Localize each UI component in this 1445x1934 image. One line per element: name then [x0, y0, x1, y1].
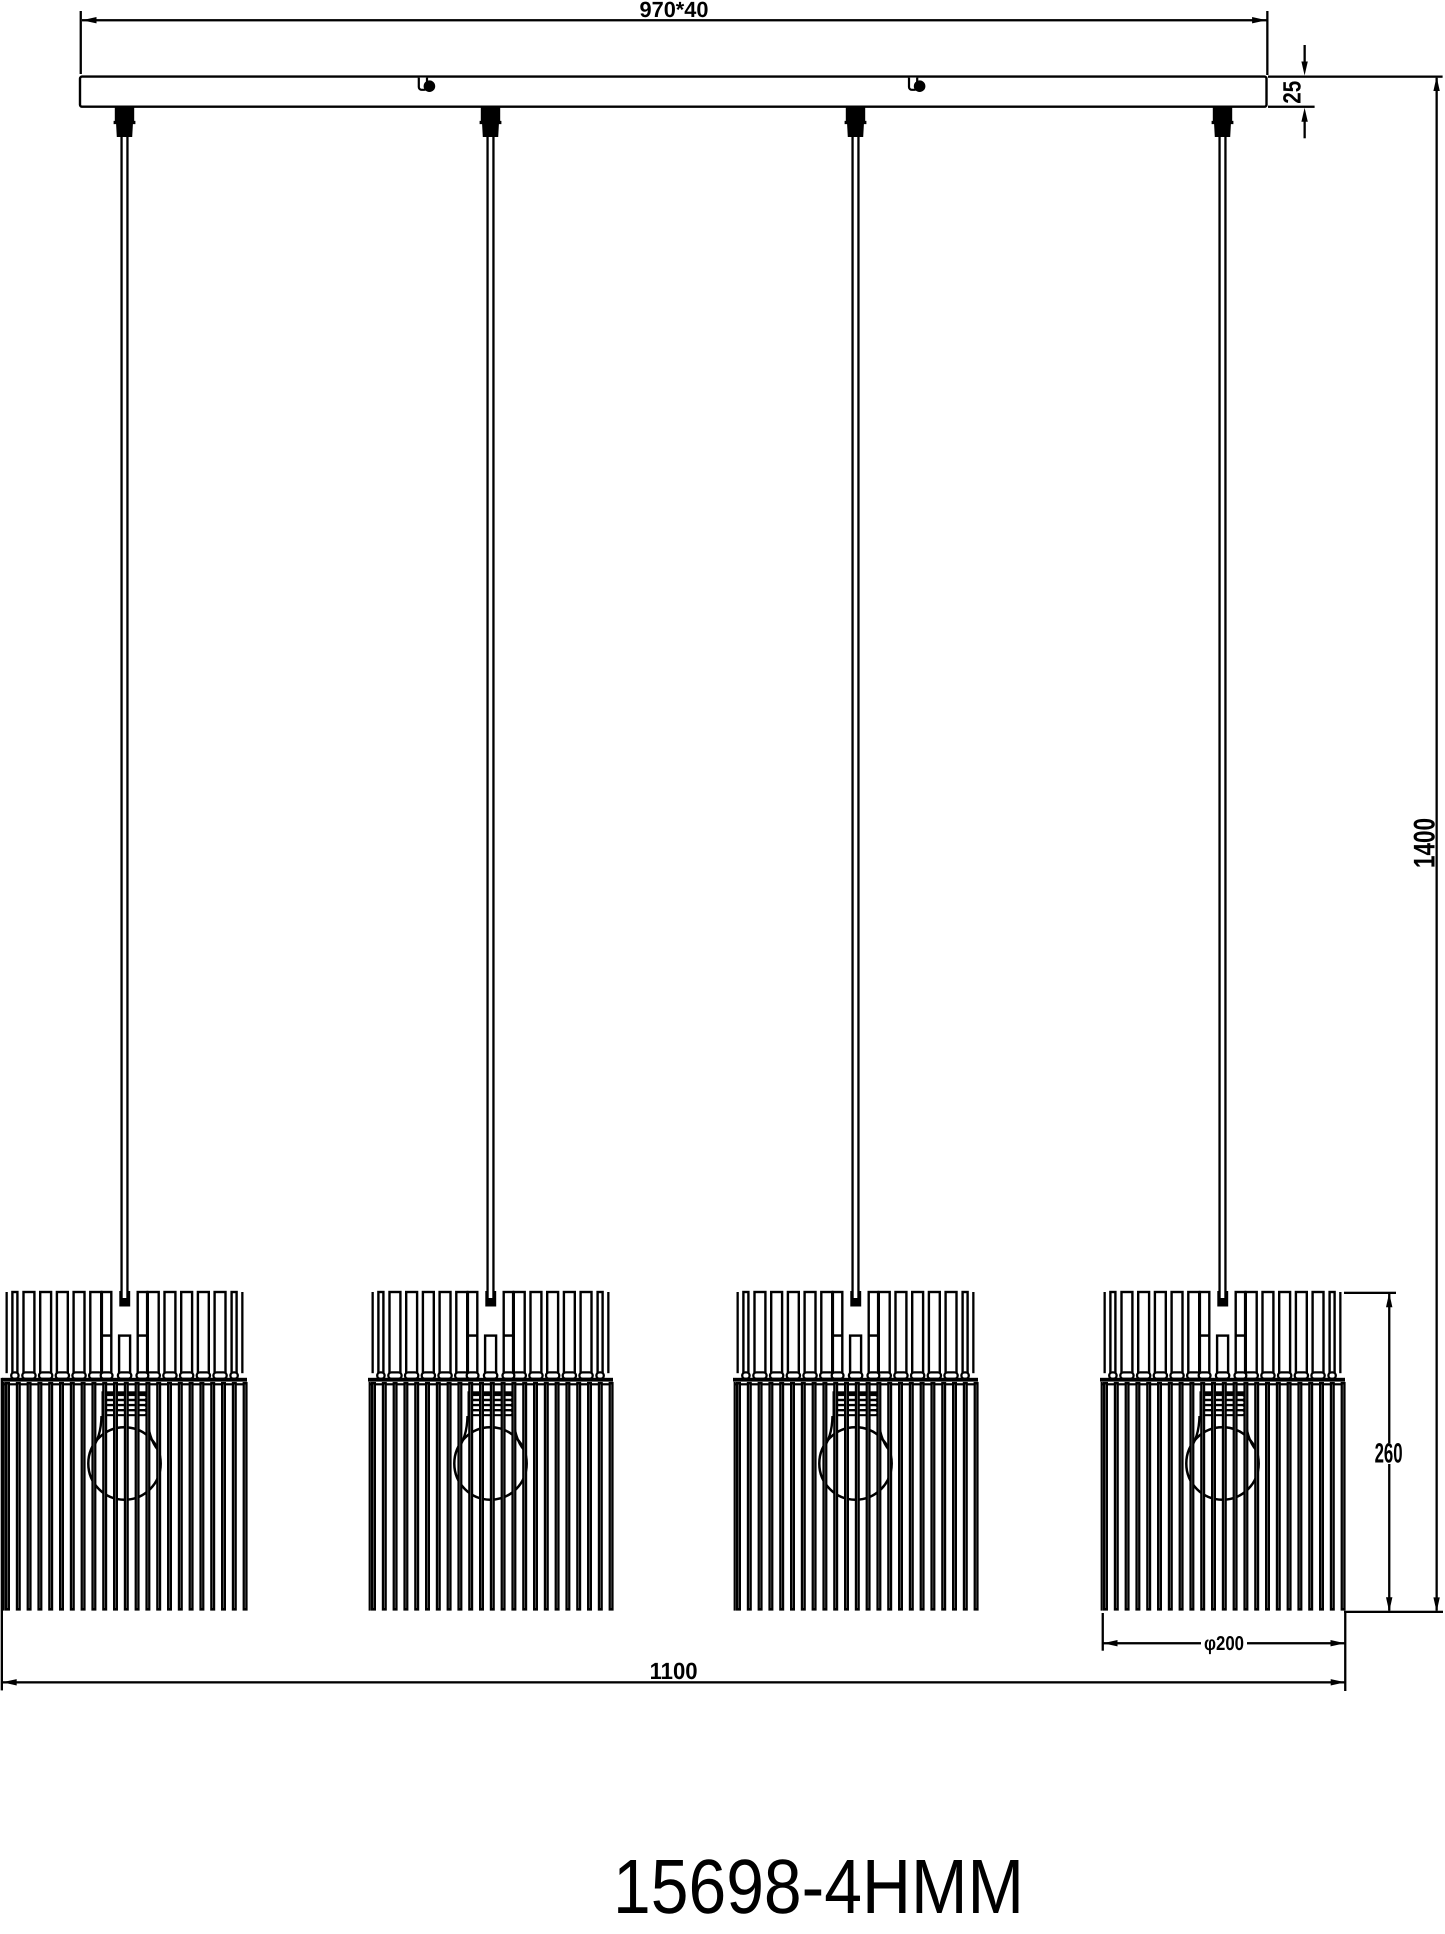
svg-text:25: 25: [1279, 81, 1307, 104]
svg-text:1400: 1400: [1409, 818, 1442, 868]
svg-text:φ200: φ200: [1204, 1633, 1244, 1655]
svg-text:1100: 1100: [650, 1658, 698, 1684]
svg-text:970*40: 970*40: [640, 0, 709, 22]
svg-text:260: 260: [1375, 1438, 1403, 1469]
svg-text:15698-4HMM: 15698-4HMM: [613, 1844, 1024, 1930]
